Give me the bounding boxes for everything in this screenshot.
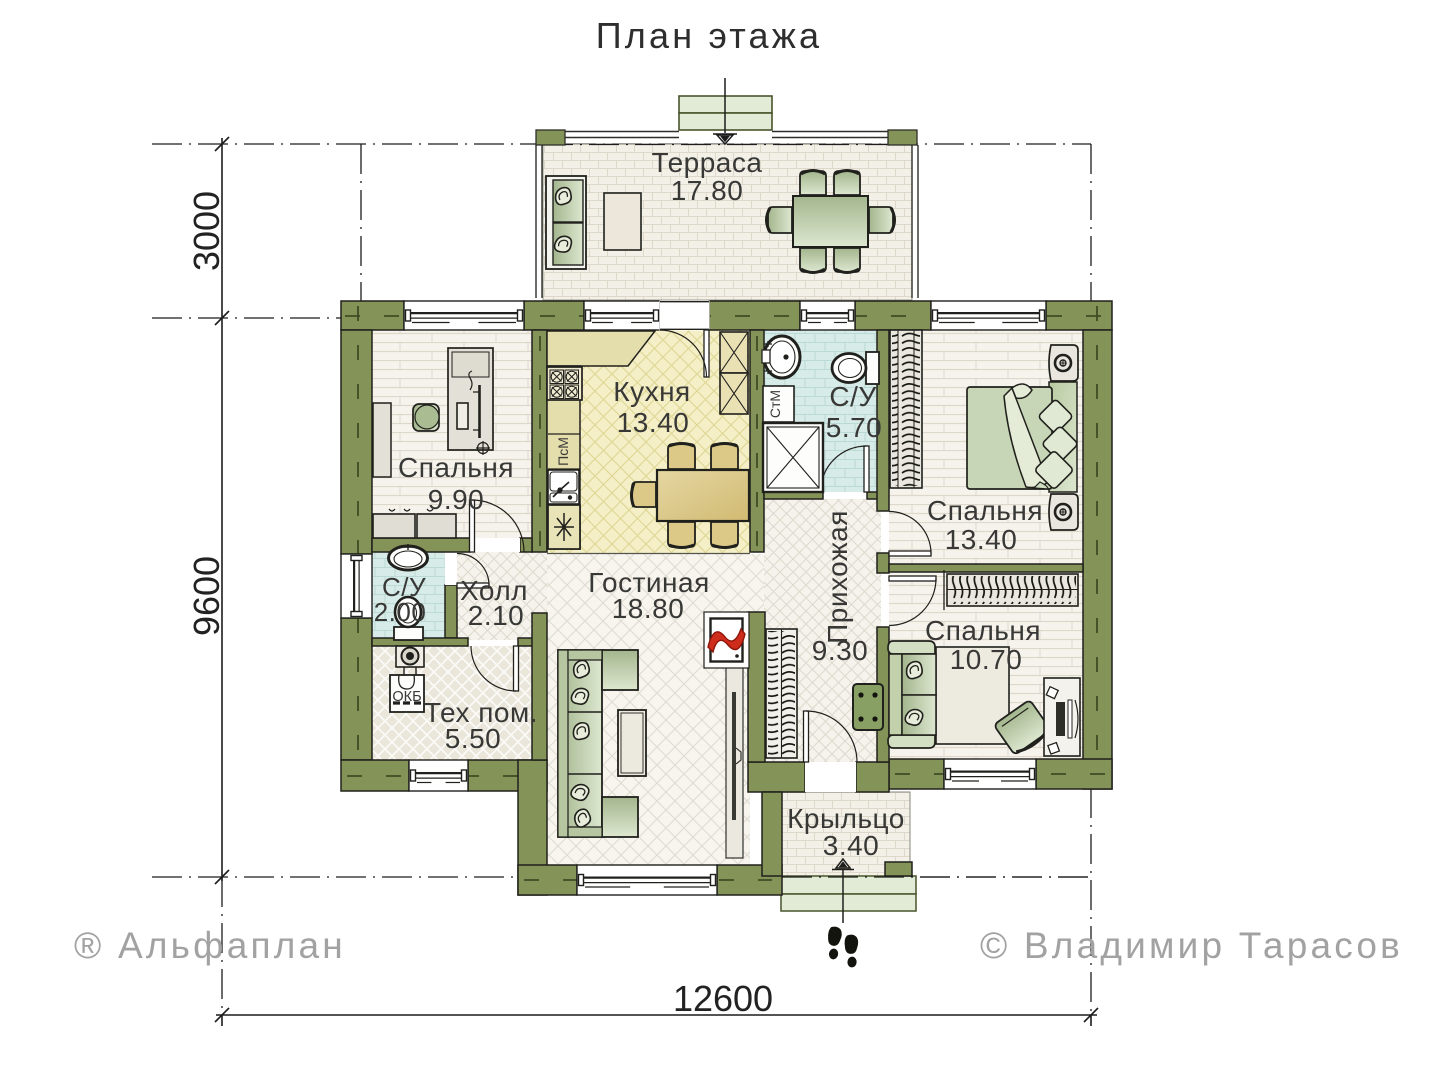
svg-text:ПсМ: ПсМ [555, 437, 571, 466]
svg-text:Спальня: Спальня [925, 615, 1041, 646]
svg-text:© Владимир Тарасов: © Владимир Тарасов [980, 925, 1403, 966]
svg-text:С/У: С/У [829, 381, 876, 412]
svg-text:9600: 9600 [186, 556, 227, 636]
svg-text:13.40: 13.40 [617, 407, 690, 438]
svg-text:9.90: 9.90 [428, 484, 485, 515]
svg-text:5.50: 5.50 [445, 723, 502, 754]
svg-text:Кухня: Кухня [613, 376, 690, 407]
svg-text:9.30: 9.30 [812, 635, 869, 666]
svg-text:2.10: 2.10 [468, 600, 525, 631]
svg-text:СтМ: СтМ [767, 390, 783, 418]
svg-text:3000: 3000 [186, 191, 227, 271]
svg-text:3.40: 3.40 [823, 830, 880, 861]
svg-text:Терраса: Терраса [652, 147, 763, 178]
svg-text:2.00: 2.00 [374, 597, 427, 627]
svg-text:Спальня: Спальня [927, 495, 1043, 526]
svg-text:Прихожая: Прихожая [822, 510, 853, 644]
svg-text:10.70: 10.70 [950, 644, 1023, 675]
svg-text:17.80: 17.80 [671, 175, 744, 206]
svg-text:5.70: 5.70 [826, 412, 883, 443]
svg-text:Спальня: Спальня [398, 452, 514, 483]
svg-text:18.80: 18.80 [612, 593, 685, 624]
svg-text:® Альфаплан: ® Альфаплан [74, 925, 346, 966]
svg-text:План этажа: План этажа [596, 15, 823, 56]
svg-text:12600: 12600 [673, 978, 773, 1019]
svg-text:13.40: 13.40 [945, 524, 1018, 555]
